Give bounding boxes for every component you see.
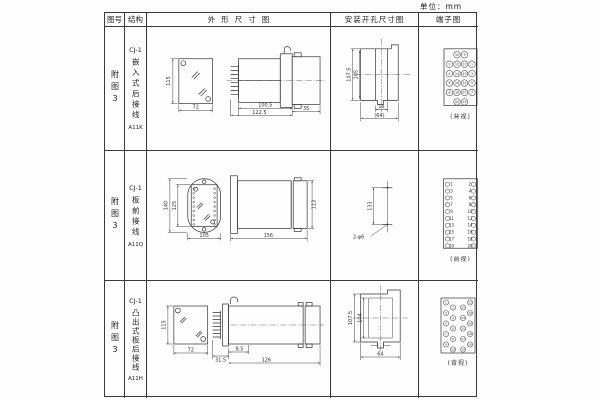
row3-outline-diagram: 115 72 bbox=[147, 281, 331, 398]
dim-label: 113 bbox=[312, 200, 318, 209]
svg-text:1: 1 bbox=[450, 182, 453, 187]
model-label: CJ-1 bbox=[129, 297, 142, 305]
terminal-circles bbox=[446, 52, 475, 106]
fig-number: 附图3 bbox=[111, 321, 119, 358]
hatch-mark bbox=[199, 89, 207, 96]
dim-label: 9.5 bbox=[236, 346, 244, 352]
row1-structure: CJ-1 嵌入式后接线 A11K bbox=[125, 27, 147, 151]
hatch-mark bbox=[196, 331, 202, 337]
panel-cutout-drawing-r1: 107.5 105 16 (64) bbox=[331, 27, 418, 150]
row2-mounting-diagram: 133 2-φ6 bbox=[331, 151, 419, 281]
svg-text:13: 13 bbox=[462, 72, 466, 76]
structure-label: 凸出式板后接线 bbox=[132, 309, 140, 372]
dim-label: 104 bbox=[358, 313, 364, 323]
dim-label: 72 bbox=[193, 104, 199, 110]
row3-fig: 附图3 bbox=[105, 281, 125, 398]
svg-text:9: 9 bbox=[463, 53, 465, 57]
svg-text:19: 19 bbox=[461, 348, 465, 352]
fig-number: 附图3 bbox=[111, 197, 119, 234]
svg-text:18: 18 bbox=[468, 332, 472, 336]
panel-cutout-drawing-r3: 107.5 104 64 bbox=[331, 281, 418, 398]
svg-text:17: 17 bbox=[449, 236, 455, 241]
svg-text:16: 16 bbox=[467, 230, 473, 235]
type-code: A11K bbox=[128, 125, 142, 131]
row3-structure: CJ-1 凸出式板后接线 A11H bbox=[125, 281, 147, 398]
header-terminal: 端子图 bbox=[419, 13, 478, 27]
row2-fig: 附图3 bbox=[105, 151, 125, 281]
svg-text:15: 15 bbox=[461, 327, 465, 331]
svg-text:19: 19 bbox=[462, 100, 466, 104]
side-view: 100.5 122.5 35 bbox=[227, 47, 326, 117]
svg-text:8: 8 bbox=[452, 337, 454, 341]
svg-text:19: 19 bbox=[449, 243, 455, 248]
dim-label: 100.5 bbox=[258, 102, 272, 108]
view-label: (背视) bbox=[448, 359, 469, 367]
row1-mounting-diagram: 107.5 105 16 (64) bbox=[331, 27, 419, 151]
dimension-table: 图号 结构 外形尺寸图 安装开孔尺寸图 端子图 附图3 CJ-1 嵌入式后接线 … bbox=[104, 12, 477, 397]
fig-number: 附图3 bbox=[111, 70, 119, 107]
svg-text:7: 7 bbox=[450, 202, 453, 207]
relay-outline-drawing-r3: 115 72 bbox=[147, 281, 330, 398]
svg-text:16: 16 bbox=[455, 81, 459, 85]
type-code: A11H bbox=[128, 376, 143, 382]
relay-outline-drawing-r2: 140 125 105 156 bbox=[147, 151, 330, 280]
dim-label: 107.5 bbox=[348, 311, 354, 325]
hatch-mark bbox=[197, 203, 203, 209]
view-label: (背视) bbox=[450, 112, 471, 120]
svg-text:11: 11 bbox=[461, 306, 465, 310]
dim-label: 126 bbox=[262, 357, 271, 363]
type-code: A11Q bbox=[128, 242, 143, 248]
svg-text:2: 2 bbox=[452, 306, 454, 310]
svg-text:4: 4 bbox=[452, 316, 454, 320]
header-outline: 外形尺寸图 bbox=[147, 13, 331, 27]
dim-label: 115 bbox=[166, 76, 172, 85]
hatch-mark bbox=[204, 215, 210, 221]
terminal-layout-r3: 13579 246810 1113151719 1214161820 (背视) bbox=[419, 281, 478, 398]
dim-label: 72 bbox=[188, 347, 194, 353]
svg-text:13: 13 bbox=[461, 316, 465, 320]
svg-text:20: 20 bbox=[467, 243, 473, 248]
svg-text:4: 4 bbox=[448, 72, 450, 76]
dim-label: 16 bbox=[378, 104, 384, 110]
dim-label: 122.5 bbox=[252, 110, 266, 116]
svg-text:7: 7 bbox=[471, 91, 473, 95]
terminal-layout-r2: 12 34 56 78 910 1112 1314 1516 1718 1920… bbox=[419, 151, 478, 280]
dim-label: 64 bbox=[377, 351, 383, 357]
svg-text:18: 18 bbox=[455, 91, 459, 95]
dim-label: 125 bbox=[172, 201, 178, 210]
row1-fig: 附图3 bbox=[105, 27, 125, 151]
side-view: 156 113 bbox=[231, 176, 318, 241]
svg-text:5: 5 bbox=[450, 195, 453, 200]
dim-label: 107.5 bbox=[346, 68, 352, 82]
svg-text:20: 20 bbox=[468, 343, 472, 347]
svg-text:11: 11 bbox=[449, 216, 455, 221]
header-mounting: 安装开孔尺寸图 bbox=[331, 13, 419, 27]
unit-label: 单位：mm bbox=[420, 1, 462, 12]
row2-structure: CJ-1 板前接线 A11Q bbox=[125, 151, 147, 281]
svg-text:10: 10 bbox=[467, 209, 473, 214]
svg-text:12: 12 bbox=[455, 62, 459, 66]
row3-terminal-diagram: 13579 246810 1113151719 1214161820 (背视) bbox=[419, 281, 478, 398]
model-label: CJ-1 bbox=[129, 46, 142, 54]
svg-text:5: 5 bbox=[445, 322, 447, 326]
hook-clip bbox=[284, 47, 290, 54]
dim-label: 140 bbox=[163, 201, 169, 210]
svg-text:1: 1 bbox=[471, 62, 473, 66]
dim-label: 35 bbox=[303, 106, 309, 112]
svg-text:3: 3 bbox=[445, 311, 447, 315]
svg-text:12: 12 bbox=[468, 301, 472, 305]
dim-label: 133 bbox=[368, 201, 374, 210]
svg-text:3: 3 bbox=[471, 72, 473, 76]
front-view: 115 72 bbox=[161, 306, 207, 355]
front-view: 115 72 bbox=[166, 59, 213, 113]
svg-text:17: 17 bbox=[462, 91, 466, 95]
structure-label: 嵌入式后接线 bbox=[132, 58, 140, 121]
svg-text:6: 6 bbox=[448, 81, 450, 85]
svg-text:9: 9 bbox=[450, 209, 453, 214]
leader-line bbox=[371, 224, 388, 236]
row1-terminal-diagram: 109 212111 414133 616155 818177 2019 (背视… bbox=[419, 27, 478, 151]
hook-clip bbox=[231, 297, 238, 304]
relay-outline-drawing-r1: 115 72 1 bbox=[147, 27, 330, 150]
svg-text:18: 18 bbox=[467, 236, 473, 241]
terminal-layout-r1: 109 212111 414133 616155 818177 2019 (背视… bbox=[419, 27, 478, 150]
row3-mounting-diagram: 107.5 104 64 bbox=[331, 281, 419, 398]
dim-label: (64) bbox=[374, 113, 384, 119]
drill-hole-drawing-r2: 133 2-φ6 bbox=[331, 151, 418, 280]
svg-text:5: 5 bbox=[471, 81, 473, 85]
dim-label: 115 bbox=[161, 320, 167, 330]
svg-text:14: 14 bbox=[455, 72, 459, 76]
model-label: CJ-1 bbox=[129, 184, 142, 192]
holes-label: 2-φ6 bbox=[353, 234, 364, 240]
front-view: 140 125 105 bbox=[163, 179, 220, 241]
row2-outline-diagram: 140 125 105 156 bbox=[147, 151, 331, 281]
svg-text:14: 14 bbox=[468, 311, 472, 315]
svg-text:7: 7 bbox=[445, 332, 447, 336]
dim-label: 105 bbox=[354, 70, 360, 79]
svg-text:1: 1 bbox=[445, 301, 447, 305]
spec-sheet-page: 单位：mm 图号 结构 外形尺寸图 安装开孔尺寸图 端子图 附图3 CJ-1 嵌… bbox=[0, 0, 600, 400]
svg-text:14: 14 bbox=[467, 223, 473, 228]
dim-label: 156 bbox=[264, 233, 273, 239]
svg-text:12: 12 bbox=[467, 216, 473, 221]
svg-text:8: 8 bbox=[448, 91, 450, 95]
svg-text:3: 3 bbox=[450, 188, 453, 193]
row1-outline-diagram: 115 72 1 bbox=[147, 27, 331, 151]
svg-text:6: 6 bbox=[452, 327, 454, 331]
view-label: (前视) bbox=[450, 255, 471, 263]
svg-text:2: 2 bbox=[448, 62, 450, 66]
svg-text:16: 16 bbox=[468, 322, 472, 326]
svg-text:9: 9 bbox=[445, 343, 447, 347]
svg-text:10: 10 bbox=[455, 53, 459, 57]
terminal-numbers: 12 34 56 78 910 1112 1314 1516 1718 1920 bbox=[449, 182, 473, 249]
dim-label: 105 bbox=[199, 233, 208, 239]
structure-label: 板前接线 bbox=[132, 196, 140, 238]
svg-text:15: 15 bbox=[462, 81, 466, 85]
svg-text:15: 15 bbox=[449, 230, 455, 235]
hatch-mark bbox=[180, 317, 186, 323]
svg-text:13: 13 bbox=[449, 223, 455, 228]
svg-text:11: 11 bbox=[462, 62, 466, 66]
header-struct: 结构 bbox=[125, 13, 147, 27]
svg-text:10: 10 bbox=[451, 348, 455, 352]
hatch-mark bbox=[192, 72, 200, 79]
svg-text:20: 20 bbox=[455, 100, 459, 104]
terminal-numbers: 109 212111 414133 616155 818177 2019 bbox=[448, 53, 473, 104]
svg-text:17: 17 bbox=[461, 337, 465, 341]
header-fig: 图号 bbox=[105, 13, 125, 27]
dim-label: 31.5 bbox=[215, 357, 226, 363]
terminal-numbers: 13579 246810 1113151719 1214161820 bbox=[445, 301, 472, 352]
side-view: 31.5 9.5 126 bbox=[213, 297, 324, 366]
row2-terminal-diagram: 12 34 56 78 910 1112 1314 1516 1718 1920… bbox=[419, 151, 478, 281]
